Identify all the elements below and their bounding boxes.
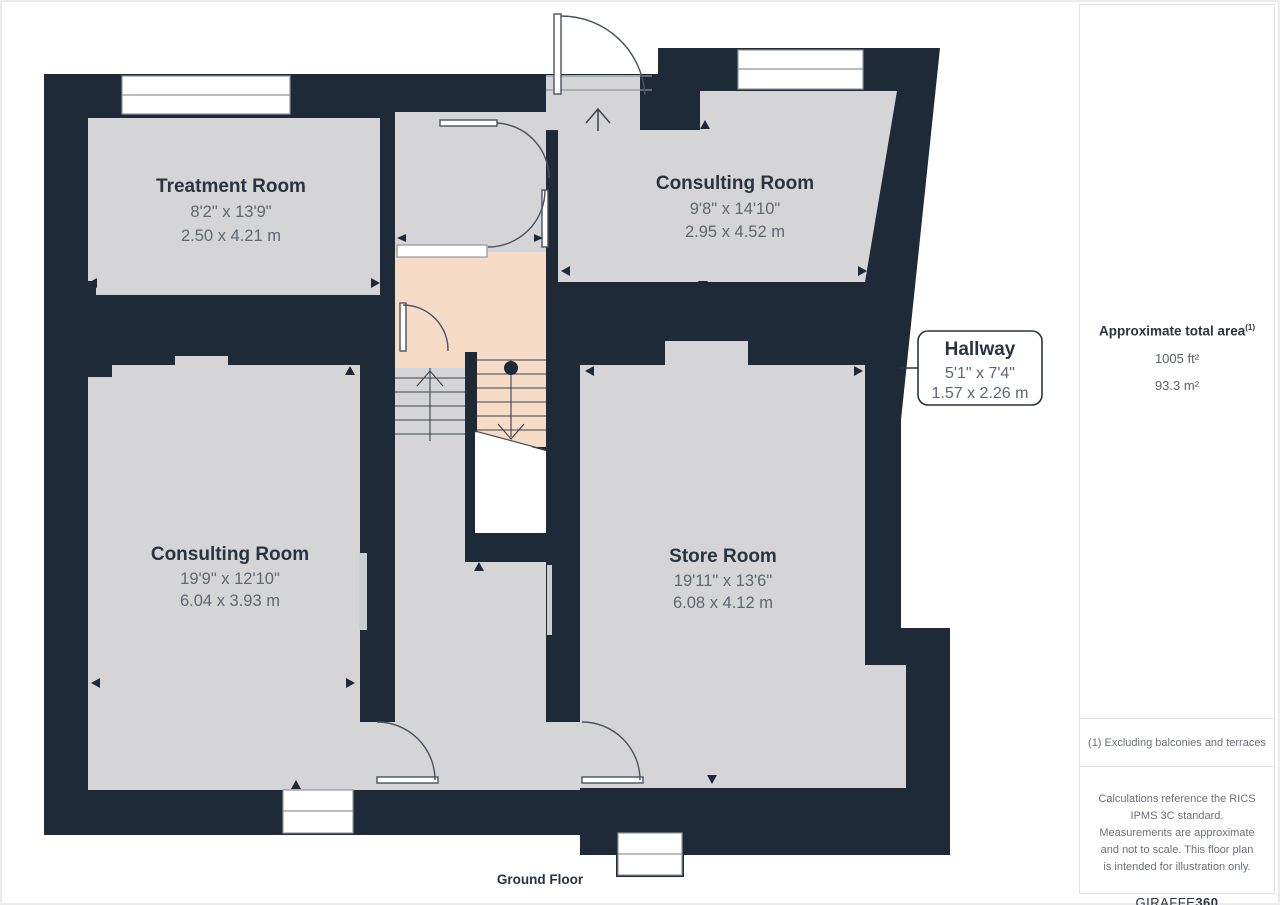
brand-regular: GIRAFFE (1135, 895, 1195, 905)
wall-notch (88, 365, 112, 377)
window-icon (283, 790, 353, 833)
wall-recess (547, 565, 552, 635)
interior-window-icon (397, 245, 487, 257)
room-dim-imperial: 9'8" x 14'10" (690, 200, 781, 218)
room-dim-imperial: 19'11" x 13'6" (674, 572, 773, 590)
info-sidebar: Approximate total area(1) 1005 ft² 93.3 … (1079, 4, 1275, 894)
total-area-footnote-ref: (1) (1245, 323, 1255, 332)
room-dim-metric: 2.50 x 4.21 m (181, 227, 281, 245)
footnote: (1) Excluding balconies and terraces (1080, 718, 1274, 767)
room-dim-imperial: 8'2" x 13'9" (190, 203, 271, 221)
callout-name: Hallway (945, 339, 1016, 360)
callout-dim-metric: 1.57 x 2.26 m (932, 385, 1029, 402)
room-name: Treatment Room (156, 176, 306, 197)
total-area-label: Approximate total area (1099, 324, 1245, 339)
wall-recess (359, 553, 367, 630)
room-dim-metric: 6.04 x 3.93 m (180, 592, 280, 610)
brand-bold: 360 (1195, 895, 1218, 905)
callout-dim-imperial: 5'1" x 7'4" (945, 365, 1015, 382)
total-area-block: Approximate total area(1) 1005 ft² 93.3 … (1080, 323, 1274, 393)
room-dim-metric: 2.95 x 4.52 m (685, 223, 785, 241)
hallway-callout: Hallway 5'1" x 7'4" 1.57 x 2.26 m (898, 331, 1042, 405)
chimney-tab (665, 341, 748, 365)
total-area-title: Approximate total area(1) (1080, 323, 1274, 339)
window-icon (122, 76, 290, 114)
room-name: Store Room (669, 546, 777, 567)
disclaimer-section: Calculations reference the RICS IPMS 3C … (1080, 765, 1274, 893)
room-name: Consulting Room (151, 544, 309, 565)
total-area-ft: 1005 ft² (1080, 351, 1274, 366)
window-icon (738, 50, 863, 89)
room-name: Consulting Room (656, 173, 814, 194)
giraffe360-logo: GIRAFFE360 (1096, 893, 1258, 905)
floor-label: Ground Floor (0, 872, 1080, 887)
disclaimer-text: Calculations reference the RICS IPMS 3C … (1096, 791, 1258, 876)
total-area-m: 93.3 m² (1080, 378, 1274, 393)
stair-start-dot-icon (504, 361, 518, 375)
room-dim-metric: 6.08 x 4.12 m (673, 594, 773, 612)
floorplan-page: Treatment Room 8'2" x 13'9" 2.50 x 4.21 … (0, 0, 1280, 905)
window-icon (618, 833, 682, 875)
vestibule-floor (395, 112, 546, 252)
chimney-tab (175, 356, 228, 365)
room-dim-imperial: 19'9" x 12'10" (180, 570, 280, 588)
